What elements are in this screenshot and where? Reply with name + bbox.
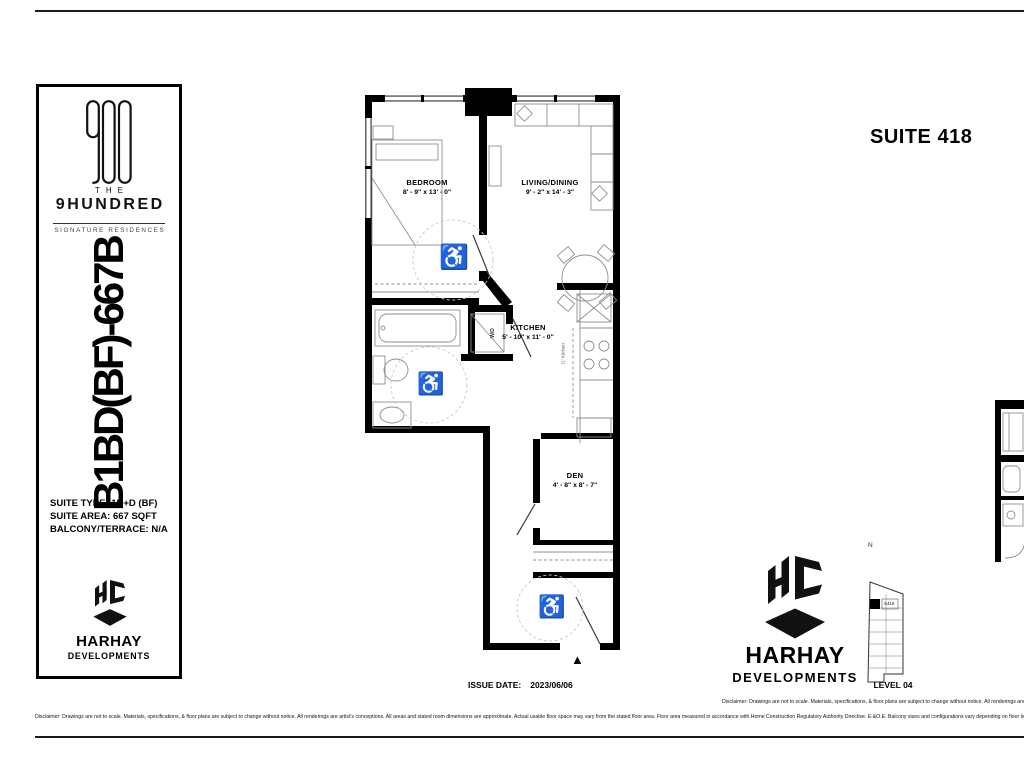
console <box>489 146 501 186</box>
suite-specs: SUITE TYPE: 1B+D (BF) SUITE AREA: 667 SQ… <box>50 497 168 536</box>
disclaimer-right: Disclaimer: Drawings are not to scale. M… <box>722 699 1024 705</box>
sofa <box>515 104 613 126</box>
brand-name: 9HUNDRED <box>39 196 179 214</box>
north-indicator: N <box>868 542 873 549</box>
entry-arrow-icon: ▲ <box>571 653 584 666</box>
the9hundred-900-logo <box>86 100 132 184</box>
room-label-bedroom: BEDROOM 8' - 9" x 13' - 0" <box>403 178 451 196</box>
room-label-living-dining: LIVING/DINING 9' - 2" x 14' - 3" <box>521 178 578 196</box>
disclaimer-bottom: Disclaimer: Drawings are not to scale. M… <box>35 714 1024 720</box>
pillow <box>376 144 438 160</box>
wheelchair-icon-bathroom: ♿ <box>417 373 444 395</box>
footer-developer-subtitle: DEVELOPMENTS <box>720 670 870 685</box>
brand-subtitle: SIGNATURE RESIDENCES <box>39 227 179 234</box>
wheelchair-icon-entry: ♿ <box>538 596 565 618</box>
kitchen-run-label: 11' Kitchen <box>561 343 566 365</box>
floorplan-sheet: { "sheet": { "suite_title": "SUITE 418",… <box>0 0 1024 768</box>
floorplan: BEDROOM 8' - 9" x 13' - 0" LIVING/DINING… <box>365 88 620 668</box>
walls <box>365 88 620 650</box>
developer-subtitle: DEVELOPMENTS <box>39 651 179 661</box>
bathtub <box>375 310 460 346</box>
room-label-kitchen: KITCHEN 5' - 10" x 11' - 0" <box>502 323 554 341</box>
key-plan-drawing <box>858 542 928 694</box>
level-key-plan: N S418 LEVEL 04 <box>858 542 928 694</box>
structural-shaft <box>465 88 512 116</box>
harhay-hc-logo-footer <box>745 544 845 640</box>
suite-area: SUITE AREA: 667 SQFT <box>50 510 168 523</box>
footer-brand: HARHAY DEVELOPMENTS <box>720 544 870 685</box>
issue-date: ISSUE DATE:2023/06/06 <box>468 680 582 690</box>
issue-date-label: ISSUE DATE: <box>468 680 521 690</box>
sheet-top-border-line <box>35 10 1024 12</box>
room-label-den: DEN 4' - 8" x 8' - 7" <box>553 471 597 489</box>
footer-developer-name: HARHAY <box>720 642 870 669</box>
highlighted-suite <box>870 599 880 609</box>
key-plan-suite-label: S418 <box>884 601 895 606</box>
adjacent-plan-fragment <box>995 400 1024 562</box>
key-plan-level-label: LEVEL 04 <box>858 680 928 690</box>
developer-name: HARHAY <box>39 633 179 650</box>
washer-dryer-label: W/D <box>490 328 496 338</box>
issue-date-value: 2023/06/06 <box>530 680 573 690</box>
plan-info-panel: THE 9HUNDRED SIGNATURE RESIDENCES B1BD(B… <box>36 84 182 679</box>
brand-the: THE <box>39 186 179 195</box>
floorplan-drawing <box>365 88 620 668</box>
plan-code-vertical: B1BD(BF)-667B <box>85 237 133 511</box>
sheet-bottom-border-line <box>35 736 1024 738</box>
toilet <box>373 356 385 384</box>
wheelchair-icon-bedroom: ♿ <box>439 246 469 270</box>
suite-balcony: BALCONY/TERRACE: N/A <box>50 523 168 536</box>
suite-type: SUITE TYPE: 1B+D (BF) <box>50 497 168 510</box>
harhay-hc-logo <box>85 573 135 627</box>
nightstand <box>373 126 393 139</box>
suite-title: SUITE 418 <box>870 126 972 149</box>
brand-divider <box>53 223 165 224</box>
